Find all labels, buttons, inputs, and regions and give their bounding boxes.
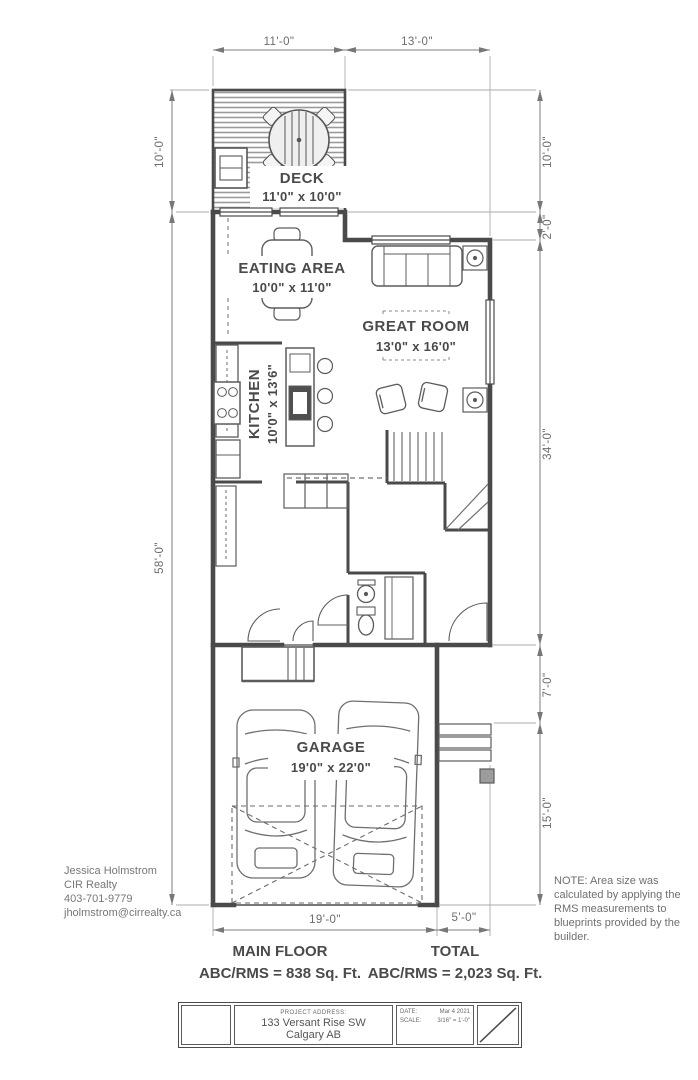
room-label-garage: GARAGE xyxy=(297,739,366,756)
date-label: DATE: xyxy=(400,1008,417,1017)
dim-right-3: 34'-0" xyxy=(542,428,554,460)
title-block-slash-cell xyxy=(477,1005,519,1045)
room-label-eating: EATING AREA xyxy=(238,260,345,277)
title-block-meta-cell: DATE: Mar 4 2021 SCALE: 3/16" = 1'-0" xyxy=(396,1005,474,1045)
room-size-great-room: 13'0" x 16'0" xyxy=(376,339,456,354)
dim-bottom-garage: 19'-0" xyxy=(309,914,341,926)
dim-bottom-porch: 5'-0" xyxy=(452,912,477,924)
dim-right-4: 7'-0" xyxy=(542,673,554,698)
total-label: TOTAL xyxy=(360,941,550,963)
dim-top-left: 11'-0" xyxy=(264,36,295,48)
agent-company: CIR Realty xyxy=(64,878,244,892)
scale-label: SCALE: xyxy=(400,1017,421,1026)
dim-left-total: 58'-0" xyxy=(154,542,166,574)
title-block-address-cell: PROJECT ADDRESS: 133 Versant Rise SW Cal… xyxy=(234,1005,393,1045)
sink-icon xyxy=(358,580,376,603)
fridge-icon xyxy=(216,440,240,478)
powder-door-icon xyxy=(318,595,348,625)
room-label-kitchen: KITCHEN xyxy=(246,369,263,439)
great-room: GREAT ROOM 13'0" x 16'0" xyxy=(362,246,487,415)
agent-phone: 403-701-9779 xyxy=(64,892,244,906)
entry-door-icon xyxy=(449,603,487,641)
agent-info: Jessica Holmstrom CIR Realty 403-701-977… xyxy=(64,864,244,920)
closet-door-icon xyxy=(248,609,280,641)
diagonal-slash-icon xyxy=(478,1006,518,1044)
powder-room xyxy=(357,577,413,639)
title-block: PROJECT ADDRESS: 133 Versant Rise SW Cal… xyxy=(178,1002,522,1048)
deck-area: DECK 11'0" x 10'0" xyxy=(213,90,356,212)
room-label-great-room: GREAT ROOM xyxy=(362,318,469,335)
room-size-garage: 19'0" x 22'0" xyxy=(291,760,371,775)
toilet-icon xyxy=(357,607,375,635)
exterior-walls xyxy=(213,212,490,905)
island-icon xyxy=(286,348,314,446)
room-size-deck: 11'0" x 10'0" xyxy=(262,189,342,204)
car-icon xyxy=(329,701,423,888)
garage-door-swing-icon xyxy=(232,806,422,903)
project-address-line2: Calgary AB xyxy=(286,1029,341,1041)
post-pad-icon xyxy=(480,769,494,783)
title-block-logo-cell xyxy=(181,1005,231,1045)
closet-door2-icon xyxy=(293,621,313,641)
room-size-eating: 10'0" x 11'0" xyxy=(252,280,332,295)
project-address-line1: 133 Versant Rise SW xyxy=(261,1017,366,1029)
dim-right-2: 2'-0" xyxy=(542,215,554,240)
agent-email: jholmstrom@cirrealty.ca xyxy=(64,906,244,920)
stool-icon xyxy=(318,359,333,432)
bench-cubbies-icon xyxy=(216,474,348,566)
dim-top-right: 13'-0" xyxy=(401,36,433,48)
date-value: Mar 4 2021 xyxy=(440,1008,470,1017)
dim-left-deck: 10'-0" xyxy=(154,136,166,168)
total-value: ABC/RMS = 2,023 Sq. Ft. xyxy=(360,963,550,985)
room-label-deck: DECK xyxy=(280,170,325,187)
room-size-kitchen: 10'0" x 13'6" xyxy=(265,364,280,444)
dim-right-1: 10'-0" xyxy=(542,136,554,168)
sofa-icon xyxy=(372,246,462,286)
exterior-steps-icon xyxy=(439,724,494,783)
accent-chair-icon xyxy=(375,382,448,415)
garage-landing-steps-icon xyxy=(242,647,314,681)
bbq-icon xyxy=(215,148,247,188)
scale-value: 3/16" = 1'-0" xyxy=(437,1017,470,1026)
agent-name: Jessica Holmstrom xyxy=(64,864,244,878)
project-address-label: PROJECT ADDRESS: xyxy=(280,1010,346,1016)
garage: GARAGE 19'0" x 22'0" xyxy=(232,647,423,903)
deck-table-icon xyxy=(262,106,336,174)
eating-area: EATING AREA 10'0" x 11'0" xyxy=(226,228,358,320)
floorplan-page: 11'-0" 13'-0" 10'-0" 58'-0" 10'-0" 2'-0"… xyxy=(0,0,698,1080)
stove-icon xyxy=(214,382,240,424)
rms-note: NOTE: Area size was calculated by applyi… xyxy=(554,874,690,944)
total-area: TOTAL ABC/RMS = 2,023 Sq. Ft. xyxy=(360,941,550,985)
dim-right-5: 15'-0" xyxy=(542,797,554,829)
